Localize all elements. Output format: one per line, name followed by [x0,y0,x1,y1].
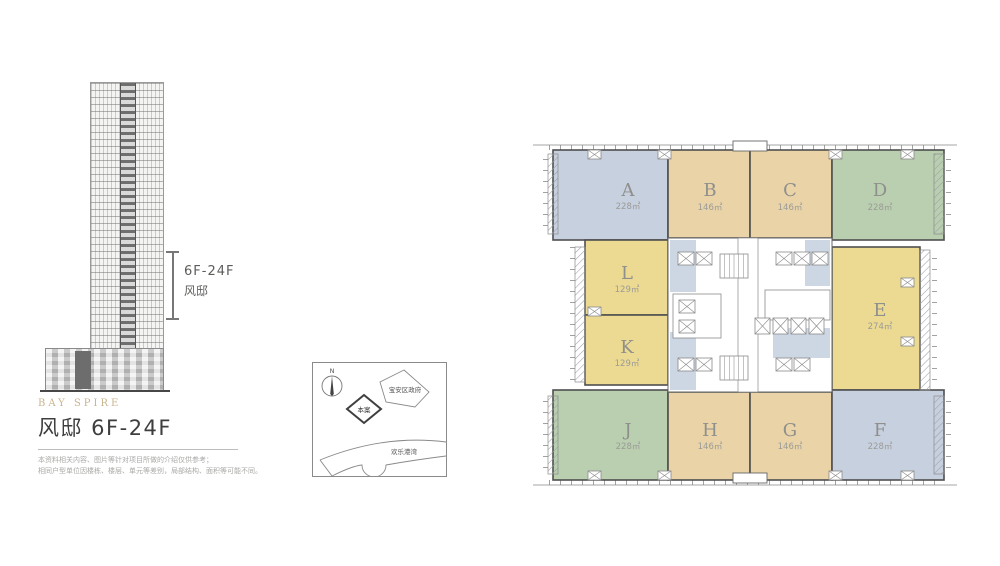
refuge-balcony-bottom [733,473,767,483]
elevator-icon [794,252,810,265]
core-corridor [670,240,696,292]
unit-a-area: 228㎡ [616,202,641,212]
column-icon [588,150,601,159]
unit-f: F 228㎡ [832,390,944,480]
unit-l-letter: L [621,263,633,284]
landmark-government-label: 宝安区政府 [389,385,422,394]
title-divider [38,449,238,450]
unit-b-letter: B [703,180,716,201]
disclaimer-line-1: 本资料相关内容、图片等针对项目所做的介绍仅供参考； [38,455,262,466]
right-mullion-ticks-f [946,396,951,474]
unit-k: K 129㎡ [585,315,668,385]
column-icon [901,150,914,159]
left-mullion-ticks-lk [570,247,575,382]
unit-j-area: 228㎡ [616,442,641,452]
unit-h: H 146㎡ [668,392,750,480]
column-icon [588,307,601,316]
column-icon [901,471,914,480]
landmark-bay-label: 欢乐港湾 [391,447,418,456]
unit-g-letter: G [783,420,797,441]
elevator-icon [776,358,792,371]
bracket-tick-top [166,251,179,253]
elevator-icon [791,318,806,334]
disclaimer-line-2: 相同户型单位因楼栋、楼层、单元等差别，局部结构、面积等可能不同。 [38,466,262,477]
unit-l: L 129㎡ [585,240,668,315]
unit-g-area: 146㎡ [778,442,803,452]
elevator-icon [773,318,788,334]
unit-c: C 146㎡ [750,150,832,238]
unit-a-letter: A [621,180,636,201]
elevator-icon [812,252,828,265]
left-mullion-ticks-j [543,396,548,474]
floor-range-label: 6F-24F 风邸 [184,264,234,299]
brand-name: BAY SPIRE [38,398,121,409]
elevator-icon [696,358,712,371]
unit-l-area: 129㎡ [615,285,640,295]
unit-b-area: 146㎡ [698,203,723,213]
right-mullion-ticks-d [946,154,951,234]
column-icon [901,278,914,287]
right-mullion-ticks-e [932,250,937,390]
unit-d: D 228㎡ [832,150,944,240]
column-icon [658,471,671,480]
bracket-tick-bottom [166,318,179,320]
floor-range-text: 6F-24F [184,264,234,279]
column-icon [829,150,842,159]
elevator-icon [794,358,810,371]
unit-d-letter: D [873,180,887,201]
unit-a: A 228㎡ [553,150,668,240]
floor-plan: A 228㎡ B 146㎡ C 146㎡ D 228㎡ L 129㎡ K 129… [533,132,957,492]
unit-e: E 274㎡ [832,247,920,390]
landmark-site-label: 本案 [358,405,372,414]
unit-f-area: 228㎡ [868,442,893,452]
elevator-icon [755,318,770,334]
column-icon [829,471,842,480]
elevator-icon [809,318,824,334]
core [668,238,832,392]
disclaimer: 本资料相关内容、图片等针对项目所做的介绍仅供参考； 相同户型单位因楼栋、楼层、单… [38,455,262,477]
unit-b: B 146㎡ [668,150,750,238]
unit-k-letter: K [620,337,634,358]
column-icon [658,150,671,159]
column-icon [901,337,914,346]
unit-d-area: 228㎡ [868,203,893,213]
building-elevation-tower [90,82,164,349]
unit-c-area: 146㎡ [778,203,803,213]
unit-f-letter: F [874,420,887,441]
stair-icon [720,254,748,278]
elevator-icon [679,320,695,333]
unit-c-letter: C [783,180,797,201]
stair-icon [720,356,748,380]
left-mullion-ticks-a [543,154,548,234]
column-icon [588,471,601,480]
unit-e-letter: E [873,300,886,321]
elevator-icon [696,252,712,265]
ground-line [40,390,170,392]
unit-e-area: 274㎡ [868,322,893,332]
location-map: N 宝安区政府 本案 欢乐港湾 [312,362,447,477]
floor-range-name: 风邸 [184,282,234,299]
unit-g: G 146㎡ [750,392,832,480]
unit-j-letter: J [622,420,631,441]
elevator-icon [678,358,694,371]
refuge-balcony-top [733,141,767,151]
core-washroom-right [765,290,830,320]
floor-range-bracket [172,251,174,320]
elevator-icon [776,252,792,265]
unit-k-area: 129㎡ [615,359,640,369]
unit-h-area: 146㎡ [698,442,723,452]
unit-j: J 228㎡ [553,390,668,480]
map-border [313,363,447,477]
elevator-icon [679,300,695,313]
building-elevation-podium [45,348,164,392]
podium-dark-block [75,351,91,389]
page-title: 风邸 6F-24F [38,412,172,442]
compass-north-label: N [330,367,335,375]
tower-core-strip [120,83,136,349]
elevator-icon [678,252,694,265]
unit-h-letter: H [702,420,718,441]
